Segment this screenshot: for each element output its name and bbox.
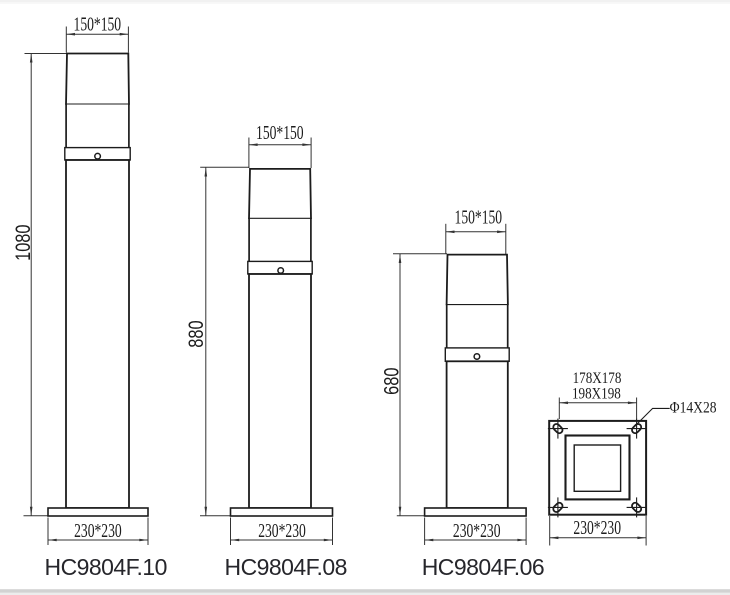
svg-text:HC9804F.08: HC9804F.08: [225, 554, 347, 580]
svg-text:150*150: 150*150: [455, 206, 503, 228]
svg-text:198X198: 198X198: [572, 385, 621, 402]
svg-text:230*230: 230*230: [74, 519, 122, 541]
svg-text:150*150: 150*150: [74, 13, 122, 35]
svg-text:230*230: 230*230: [453, 519, 501, 541]
svg-text:HC9804F.10: HC9804F.10: [45, 554, 167, 580]
svg-text:1080: 1080: [11, 224, 34, 260]
svg-text:Φ14X28: Φ14X28: [670, 400, 717, 417]
svg-text:230*230: 230*230: [573, 516, 621, 538]
svg-text:880: 880: [184, 320, 207, 347]
svg-text:230*230: 230*230: [258, 519, 306, 541]
svg-text:HC9804F.06: HC9804F.06: [422, 554, 544, 580]
svg-text:680: 680: [380, 368, 403, 395]
svg-text:150*150: 150*150: [256, 121, 304, 143]
